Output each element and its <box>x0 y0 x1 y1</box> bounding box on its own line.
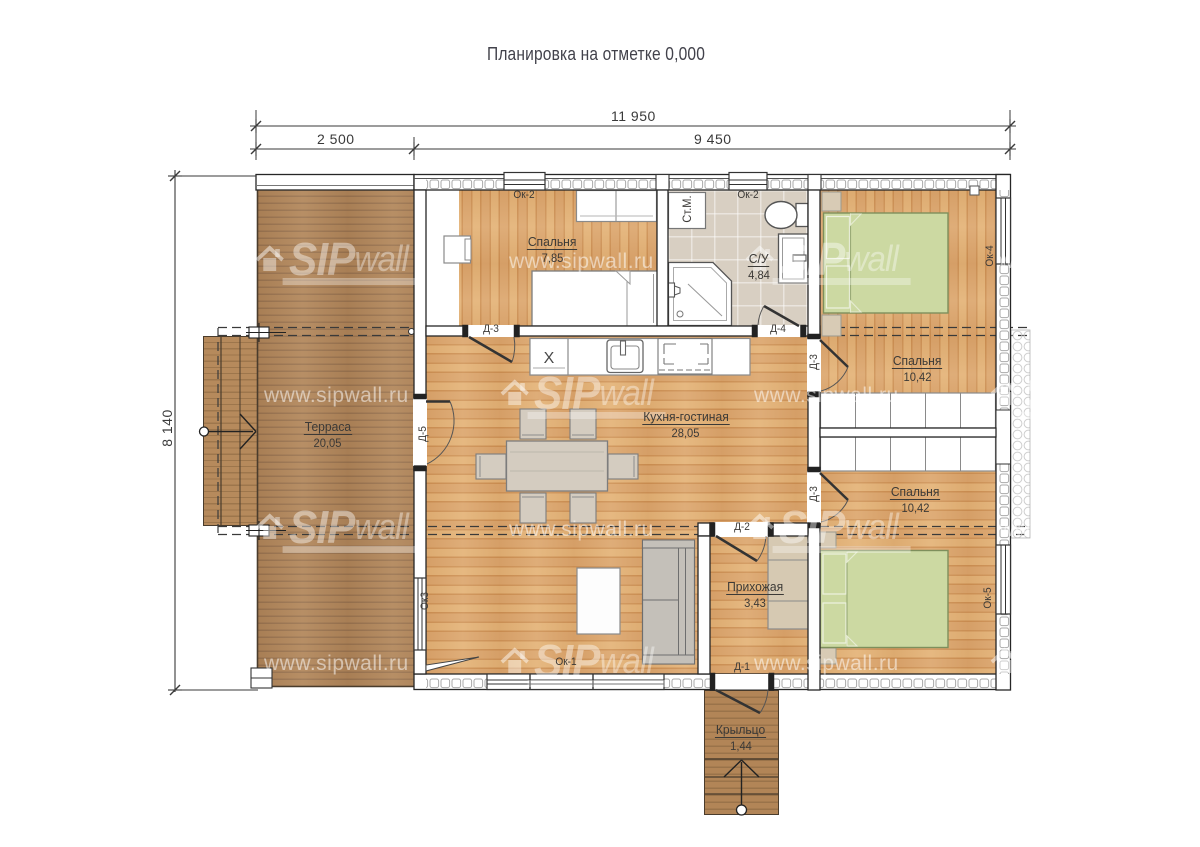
svg-text:X: X <box>544 350 555 367</box>
